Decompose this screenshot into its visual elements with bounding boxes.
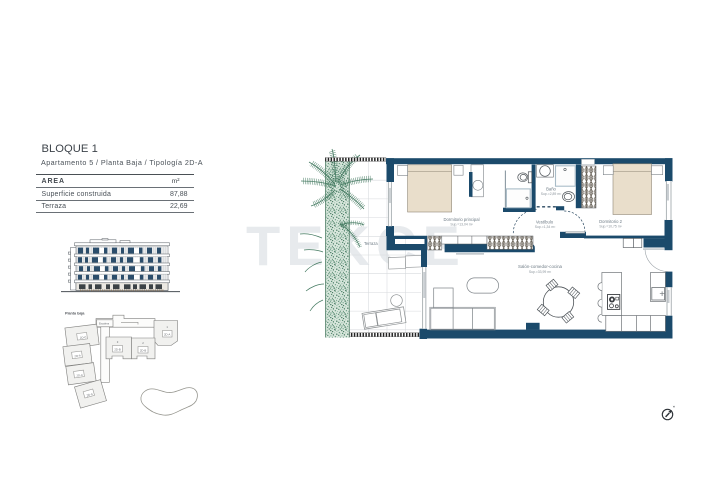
svg-text:Escalera: Escalera	[99, 322, 110, 326]
svg-text:Baño: Baño	[546, 187, 556, 192]
svg-text:2D-A: 2D-A	[164, 332, 171, 336]
svg-text:Sup.=13,04 m²: Sup.=13,04 m²	[450, 222, 473, 226]
svg-text:2D-A: 2D-A	[74, 353, 81, 358]
svg-text:Dormitorio 2: Dormitorio 2	[599, 219, 622, 224]
svg-text:2D-C: 2D-C	[80, 335, 87, 340]
svg-text:Sup.=33,99 m²: Sup.=33,99 m²	[529, 270, 552, 274]
svg-text:2D-B: 2D-B	[114, 347, 121, 351]
svg-text:Planta baja: Planta baja	[65, 312, 85, 316]
svg-text:Dormitorio principal: Dormitorio principal	[443, 217, 479, 222]
svg-text:Sup.=1,34 m²: Sup.=1,34 m²	[535, 225, 556, 229]
svg-text:Sup.=2,89 m²: Sup.=2,89 m²	[541, 192, 562, 196]
svg-text:Salón-comedor-cocina: Salón-comedor-cocina	[518, 264, 562, 269]
svg-text:Sup.=10,75 m²: Sup.=10,75 m²	[599, 225, 622, 229]
svg-text:Vestíbulo: Vestíbulo	[536, 220, 554, 225]
svg-text:2D-B: 2D-B	[140, 348, 147, 352]
svg-text:Terraza: Terraza	[364, 241, 378, 246]
